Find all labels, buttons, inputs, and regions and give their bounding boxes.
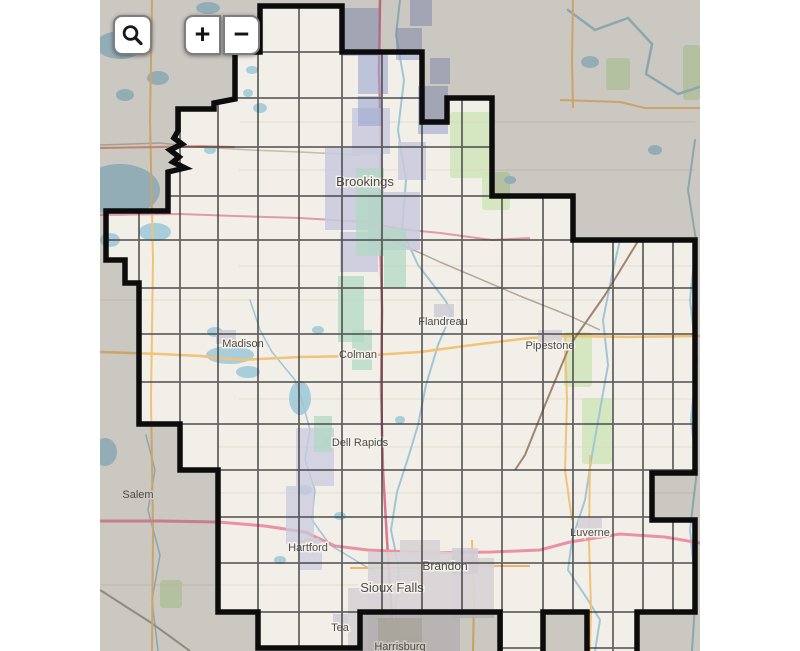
map-canvas[interactable]: BrookingsMadisonColmanFlandreauPipestone…	[100, 0, 700, 651]
lake	[395, 416, 405, 424]
place-label-pipestone: Pipestone	[526, 340, 575, 352]
urban-area	[286, 486, 314, 544]
minus-icon: −	[234, 21, 250, 48]
place-label-sioux-falls: Sioux Falls	[360, 580, 424, 595]
place-label-brookings: Brookings	[336, 174, 394, 189]
lake	[334, 512, 346, 520]
urban-area	[384, 228, 406, 288]
urban-area	[314, 416, 332, 452]
lake	[289, 381, 311, 415]
lake	[139, 223, 171, 241]
place-label-luverne: Luverne	[570, 527, 610, 539]
place-label-colman: Colman	[339, 349, 377, 361]
lake	[312, 326, 324, 334]
zoom-in-button[interactable]: +	[184, 15, 221, 55]
page: { "map": { "x": 100, "width": 600, "heig…	[0, 0, 800, 651]
urban-area	[358, 52, 388, 94]
place-label-brandon: Brandon	[422, 559, 467, 573]
place-label-tea: Tea	[331, 622, 350, 634]
map-tiles: BrookingsMadisonColmanFlandreauPipestone…	[100, 0, 700, 651]
place-label-hartford: Hartford	[288, 542, 328, 554]
zoom-control: + −	[184, 15, 260, 55]
plus-icon: +	[195, 21, 211, 48]
map-controls: + −	[113, 15, 260, 55]
lake	[253, 103, 267, 113]
lake	[243, 89, 253, 97]
zoom-out-button[interactable]: −	[223, 15, 260, 55]
lake	[236, 366, 260, 378]
urban-area	[400, 540, 440, 560]
place-label-dell-rapids: Dell Rapids	[332, 437, 389, 449]
lake	[246, 66, 258, 74]
place-label-flandreau: Flandreau	[418, 316, 468, 328]
urban-area	[358, 96, 382, 126]
search-button[interactable]	[113, 15, 152, 55]
search-icon	[121, 24, 144, 47]
